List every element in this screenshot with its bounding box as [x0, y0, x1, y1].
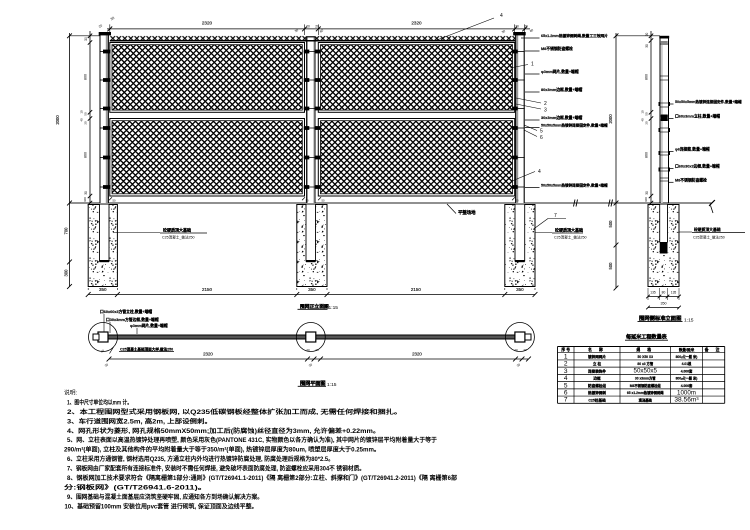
svg-text:热镀锌倒刺: 热镀锌倒刺: [588, 390, 606, 395]
svg-text:4: 4: [564, 375, 568, 382]
svg-text:2320: 2320: [412, 352, 422, 357]
svg-text:30 x3mm方管: 30 x3mm方管: [635, 376, 656, 381]
svg-text:边框: 边框: [592, 376, 601, 381]
svg-text:1: 1: [564, 353, 568, 360]
svg-text:5: 5: [540, 129, 543, 135]
svg-text:65x1.2mm热镀锌倒刺绳,数量工三效网片: 65x1.2mm热镀锌倒刺绳,数量工三效网片: [541, 33, 608, 38]
svg-text:连接装饰件: 连接装饰件: [587, 368, 606, 373]
svg-text:80x3mm边框,数量+端帽: 80x3mm边框,数量+端帽: [541, 87, 582, 92]
svg-text:5、网、立柱表面以高温热镀锌处理再喷塑, 颜色采用灰色(PA: 5、网、立柱表面以高温热镀锌处理再喷塑, 颜色采用灰色(PANTONE 431C…: [67, 436, 437, 444]
svg-text:C25混凝土基础顶面大样,做法250: C25混凝土基础顶面大样,做法250: [120, 347, 173, 352]
svg-text:4: 4: [500, 13, 503, 19]
svg-text:C25混凝土_做法250: C25混凝土_做法250: [162, 235, 195, 240]
svg-text:每延米工程数量表: 每延米工程数量表: [626, 334, 668, 341]
svg-text:8、钢板网加工技术要求符合《隔离栅第1部分:通则》(GT/T: 8、钢板网加工技术要求符合《隔离栅第1部分:通则》(GT/T26941.1-20…: [67, 474, 457, 482]
svg-text:9、围网基础与混凝土面基层应浇筑坚硬牢固, 应通知各方到场确: 9、围网基础与混凝土面基层应浇筑坚硬牢固, 应通知各方到场确认解决方案。: [67, 493, 263, 501]
svg-text:50: 50: [645, 112, 649, 116]
svg-text:2: 2: [544, 101, 547, 107]
svg-text:备 注: 备 注: [704, 347, 723, 352]
svg-text:135: 135: [650, 291, 656, 295]
svg-text:7、钢板网由厂家配套所有连接标准件, 安装时不需任何焊接,: 7、钢板网由厂家配套所有连接标准件, 安装时不需任何焊接, 避免破坏表面防腐处理…: [67, 465, 365, 473]
svg-text:1:15: 1:15: [684, 317, 694, 323]
svg-text:135: 135: [671, 291, 677, 295]
svg-text:围网侧标准立面图: 围网侧标准立面图: [639, 314, 681, 322]
svg-text:6: 6: [564, 389, 568, 396]
svg-text:口30x3mm方管边框,数量+端帽: 口30x3mm方管边框,数量+端帽: [106, 317, 159, 322]
svg-text:说明:: 说明:: [64, 389, 78, 397]
svg-text:6: 6: [540, 135, 543, 141]
svg-text:2320: 2320: [411, 20, 422, 25]
svg-text:砼硬质顶大基础: 砼硬质顶大基础: [693, 227, 721, 232]
svg-text:2150: 2150: [411, 287, 422, 292]
svg-text:M8不锈钢防盗螺栓组: M8不锈钢防盗螺栓组: [630, 383, 662, 388]
svg-text:4.006套: 4.006套: [681, 383, 693, 388]
svg-text:3、车行道围网宽2.5m, 高2m, 上部设倒刺。: 3、车行道围网宽2.5m, 高2m, 上部设倒刺。: [67, 417, 212, 425]
svg-text:口60x3mm立柱,数量+端帽: 口60x3mm立柱,数量+端帽: [675, 114, 720, 119]
svg-text:1:15: 1:15: [329, 305, 339, 311]
svg-text:38.56m³: 38.56m³: [674, 397, 699, 404]
svg-text:M8不锈钢防盗螺栓: M8不锈钢防盗螺栓: [541, 46, 573, 51]
svg-text:10、基础预留100mm 安装位用pvc套管 进行砌筑,: 10、基础预留100mm 安装位用pvc套管 进行砌筑, 保证顶面及边线平整。: [65, 502, 258, 510]
svg-text:C25混凝土_做法250: C25混凝土_做法250: [554, 235, 587, 240]
svg-text:1、图中尺寸单位均以mm 计。: 1、图中尺寸单位均以mm 计。: [67, 398, 132, 406]
svg-text:100: 100: [644, 197, 648, 202]
svg-text:20: 20: [515, 25, 519, 29]
svg-text:镀锌网网片: 镀锌网网片: [588, 354, 606, 359]
svg-text:3: 3: [544, 107, 547, 113]
svg-text:860: 860: [84, 152, 88, 158]
svg-text:350: 350: [99, 287, 107, 292]
svg-text:20: 20: [84, 121, 88, 125]
svg-text:40: 40: [80, 118, 84, 122]
svg-text:1000m: 1000m: [677, 389, 696, 396]
svg-text:30: 30: [645, 191, 649, 195]
svg-text:800㎡(一般 米): 800㎡(一般 米): [676, 354, 698, 359]
svg-text:500: 500: [608, 220, 613, 228]
svg-text:7: 7: [554, 213, 557, 219]
svg-text:20: 20: [306, 25, 310, 29]
svg-text:30: 30: [84, 191, 88, 195]
svg-text:φ3mm网片,数量+端帽: φ3mm网片,数量+端帽: [541, 69, 579, 74]
svg-text:2000: 2000: [608, 114, 613, 124]
svg-text:50x50x5mm热镀锌连接固定件,数量+端帽: 50x50x5mm热镀锌连接固定件,数量+端帽: [541, 123, 608, 128]
svg-text:50: 50: [306, 199, 309, 203]
svg-text:50x50x5mm热镀锌连接固定件,数量+端帽: 50x50x5mm热镀锌连接固定件,数量+端帽: [675, 99, 742, 104]
svg-text:20: 20: [315, 348, 319, 352]
svg-text:2000: 2000: [55, 115, 60, 125]
svg-text:50 X50 X3: 50 X50 X3: [638, 355, 654, 359]
svg-text:30x3mm边框,数量+端帽: 30x3mm边框,数量+端帽: [541, 115, 582, 120]
svg-text:20: 20: [306, 348, 310, 352]
svg-text:砼硬质顶大基础: 砼硬质顶大基础: [554, 227, 583, 233]
svg-text:7: 7: [564, 397, 568, 404]
svg-text:50: 50: [516, 199, 519, 203]
svg-text:口60x30x3边框,数量+端帽: 口60x30x3边框,数量+端帽: [675, 164, 720, 169]
svg-text:2150: 2150: [202, 287, 213, 292]
svg-text:860: 860: [645, 74, 649, 80]
svg-text:800㎡(一般 米): 800㎡(一般 米): [676, 376, 698, 381]
svg-text:6、立柱采用方通钢管, 钢材选用Q235, 方通立柱内外均进: 6、立柱采用方通钢管, 钢材选用Q235, 方通立柱内外均进行热镀锌防腐处理, …: [67, 455, 334, 463]
svg-text:1: 1: [531, 62, 534, 68]
svg-text:350: 350: [661, 302, 667, 306]
svg-text:20: 20: [523, 348, 527, 352]
svg-text:C25砼基础: C25砼基础: [588, 397, 606, 402]
svg-text:100: 100: [83, 197, 87, 202]
svg-text:规 格: 规 格: [635, 347, 654, 352]
svg-text:名 称: 名 称: [588, 347, 606, 352]
svg-text:4: 4: [538, 169, 541, 175]
svg-text:C25混凝土_做法250: C25混凝土_做法250: [693, 235, 725, 240]
svg-text:30: 30: [84, 37, 88, 41]
svg-text:口60x60x3方管立柱,数量+端帽: 口60x60x3方管立柱,数量+端帽: [100, 309, 152, 314]
svg-text:5: 5: [564, 382, 568, 389]
svg-text:50: 50: [84, 112, 88, 116]
svg-text:350: 350: [308, 287, 316, 292]
svg-text:30: 30: [645, 44, 649, 48]
svg-text:序 号: 序 号: [560, 347, 570, 352]
svg-text:350: 350: [516, 287, 524, 292]
svg-text:700: 700: [64, 227, 69, 235]
svg-text:现浇基础: 现浇基础: [639, 397, 653, 402]
svg-text:50: 50: [113, 199, 116, 203]
svg-text:围网正立面图: 围网正立面图: [300, 303, 329, 310]
svg-text:3: 3: [564, 368, 568, 375]
svg-text:1:15: 1:15: [327, 382, 337, 388]
svg-text:40: 40: [641, 118, 645, 122]
svg-text:防盗螺栓组: 防盗螺栓组: [588, 383, 606, 388]
svg-text:4、网孔形状为菱形, 网孔规格50mmX50mm;加工后(防: 4、网孔形状为菱形, 网孔规格50mmX50mm;加工后(防腐蚀)丝径直径为3m…: [67, 427, 380, 435]
svg-text:砼硬质顶大基础: 砼硬质顶大基础: [162, 227, 191, 233]
svg-text:平整场地: 平整场地: [458, 209, 476, 216]
svg-text:80 x3 方管: 80 x3 方管: [637, 361, 653, 366]
svg-text:4.006套: 4.006套: [681, 368, 693, 373]
svg-text:2、本工程围网型式采用钢板网, 以Q235低碳钢板经整体扩张: 2、本工程围网型式采用钢板网, 以Q235低碳钢板经整体扩张加工而成, 无需任何…: [67, 408, 402, 416]
svg-text:50x50x5mm热镀锌连接固定件,数量+端帽: 50x50x5mm热镀锌连接固定件,数量+端帽: [541, 183, 608, 188]
svg-text:800: 800: [84, 74, 88, 80]
svg-text:20: 20: [315, 25, 319, 29]
svg-text:20: 20: [645, 121, 649, 125]
svg-text:φ6连接筋,数量+端帽: φ6连接筋,数量+端帽: [675, 147, 710, 152]
svg-text:M8不锈钢防盗螺栓: M8不锈钢防盗螺栓: [675, 177, 707, 182]
svg-text:4.01根: 4.01根: [682, 361, 692, 366]
svg-text:分:钢板网》(GT/T26941.6-2011)。: 分:钢板网》(GT/T26941.6-2011)。: [64, 484, 207, 492]
svg-text:围网平面图: 围网平面图: [300, 380, 325, 387]
svg-text:500: 500: [608, 262, 613, 270]
svg-text:50: 50: [322, 199, 325, 203]
svg-text:2320: 2320: [203, 352, 213, 357]
svg-text:65 x1.2mm热镀锌倒刺绳: 65 x1.2mm热镀锌倒刺绳: [627, 390, 664, 395]
svg-text:50x50x5: 50x50x5: [634, 367, 658, 374]
svg-text:数量/延米: 数量/延米: [678, 347, 695, 352]
svg-text:290/m²(单面), 立柱及其他构件的平均附着量大于等于3: 290/m²(单面), 立柱及其他构件的平均附着量大于等于350/m²(单面),…: [64, 446, 380, 454]
svg-text:860: 860: [645, 152, 649, 158]
svg-text:2: 2: [564, 361, 568, 368]
svg-text:φ3mm网片,数量+端帽: φ3mm网片,数量+端帽: [130, 323, 168, 328]
svg-text:20: 20: [514, 348, 518, 352]
svg-text:20: 20: [524, 25, 528, 29]
svg-text:80: 80: [662, 291, 666, 295]
svg-text:300: 300: [64, 269, 69, 277]
svg-text:2320: 2320: [202, 20, 213, 25]
svg-text:立 柱: 立 柱: [593, 361, 602, 366]
